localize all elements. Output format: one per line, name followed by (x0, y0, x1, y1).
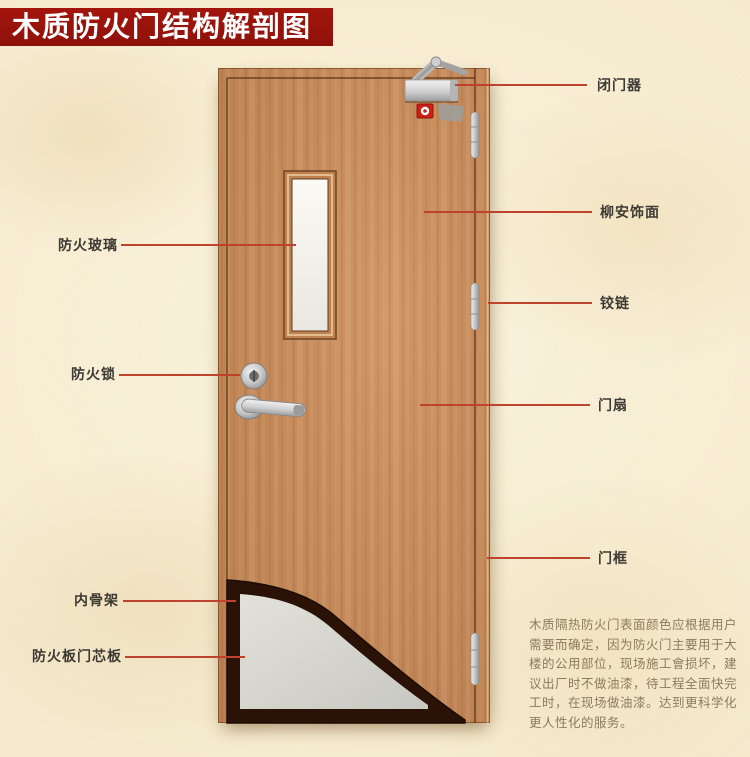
leader-line-door-closer (455, 84, 587, 86)
label-fire-lock: 防火锁 (70, 366, 116, 382)
fire-label-sticker (417, 104, 433, 118)
title-banner: 木质防火门结构解剖图 (0, 8, 333, 46)
note-paragraph: 木质隔热防火门表面颜色应根据用户 需要而确定，因为防火门主要用于大 楼的公用部位… (529, 616, 750, 733)
label-lauan-veneer: 柳安饰面 (600, 204, 660, 220)
leader-line-fire-glass (121, 244, 296, 246)
leader-line-door-frame (487, 557, 590, 559)
leader-line-inner-skeleton (123, 600, 236, 602)
fire-lock (241, 363, 267, 389)
door-svg (218, 68, 490, 723)
label-core-board: 防火板门芯板 (30, 648, 122, 664)
leader-line-hinge (488, 302, 592, 304)
label-hinge: 铰链 (600, 295, 630, 311)
leader-line-core-board (125, 656, 245, 658)
label-door-frame: 门框 (598, 550, 628, 566)
page-title: 木质防火门结构解剖图 (12, 11, 312, 42)
hinge-top (471, 112, 479, 158)
hinge-middle (471, 283, 479, 330)
label-inner-skeleton: 内骨架 (73, 592, 119, 608)
label-door-closer: 闭门器 (597, 77, 642, 93)
label-door-leaf: 门扇 (598, 397, 628, 413)
label-fire-glass: 防火玻璃 (57, 237, 118, 253)
leader-line-door-leaf (420, 404, 590, 406)
leader-line-fire-lock (119, 374, 240, 376)
fire-glass-window (284, 171, 336, 339)
door-illustration (218, 68, 490, 723)
hinge-bottom (471, 633, 479, 685)
leader-line-lauan-veneer (424, 211, 592, 213)
